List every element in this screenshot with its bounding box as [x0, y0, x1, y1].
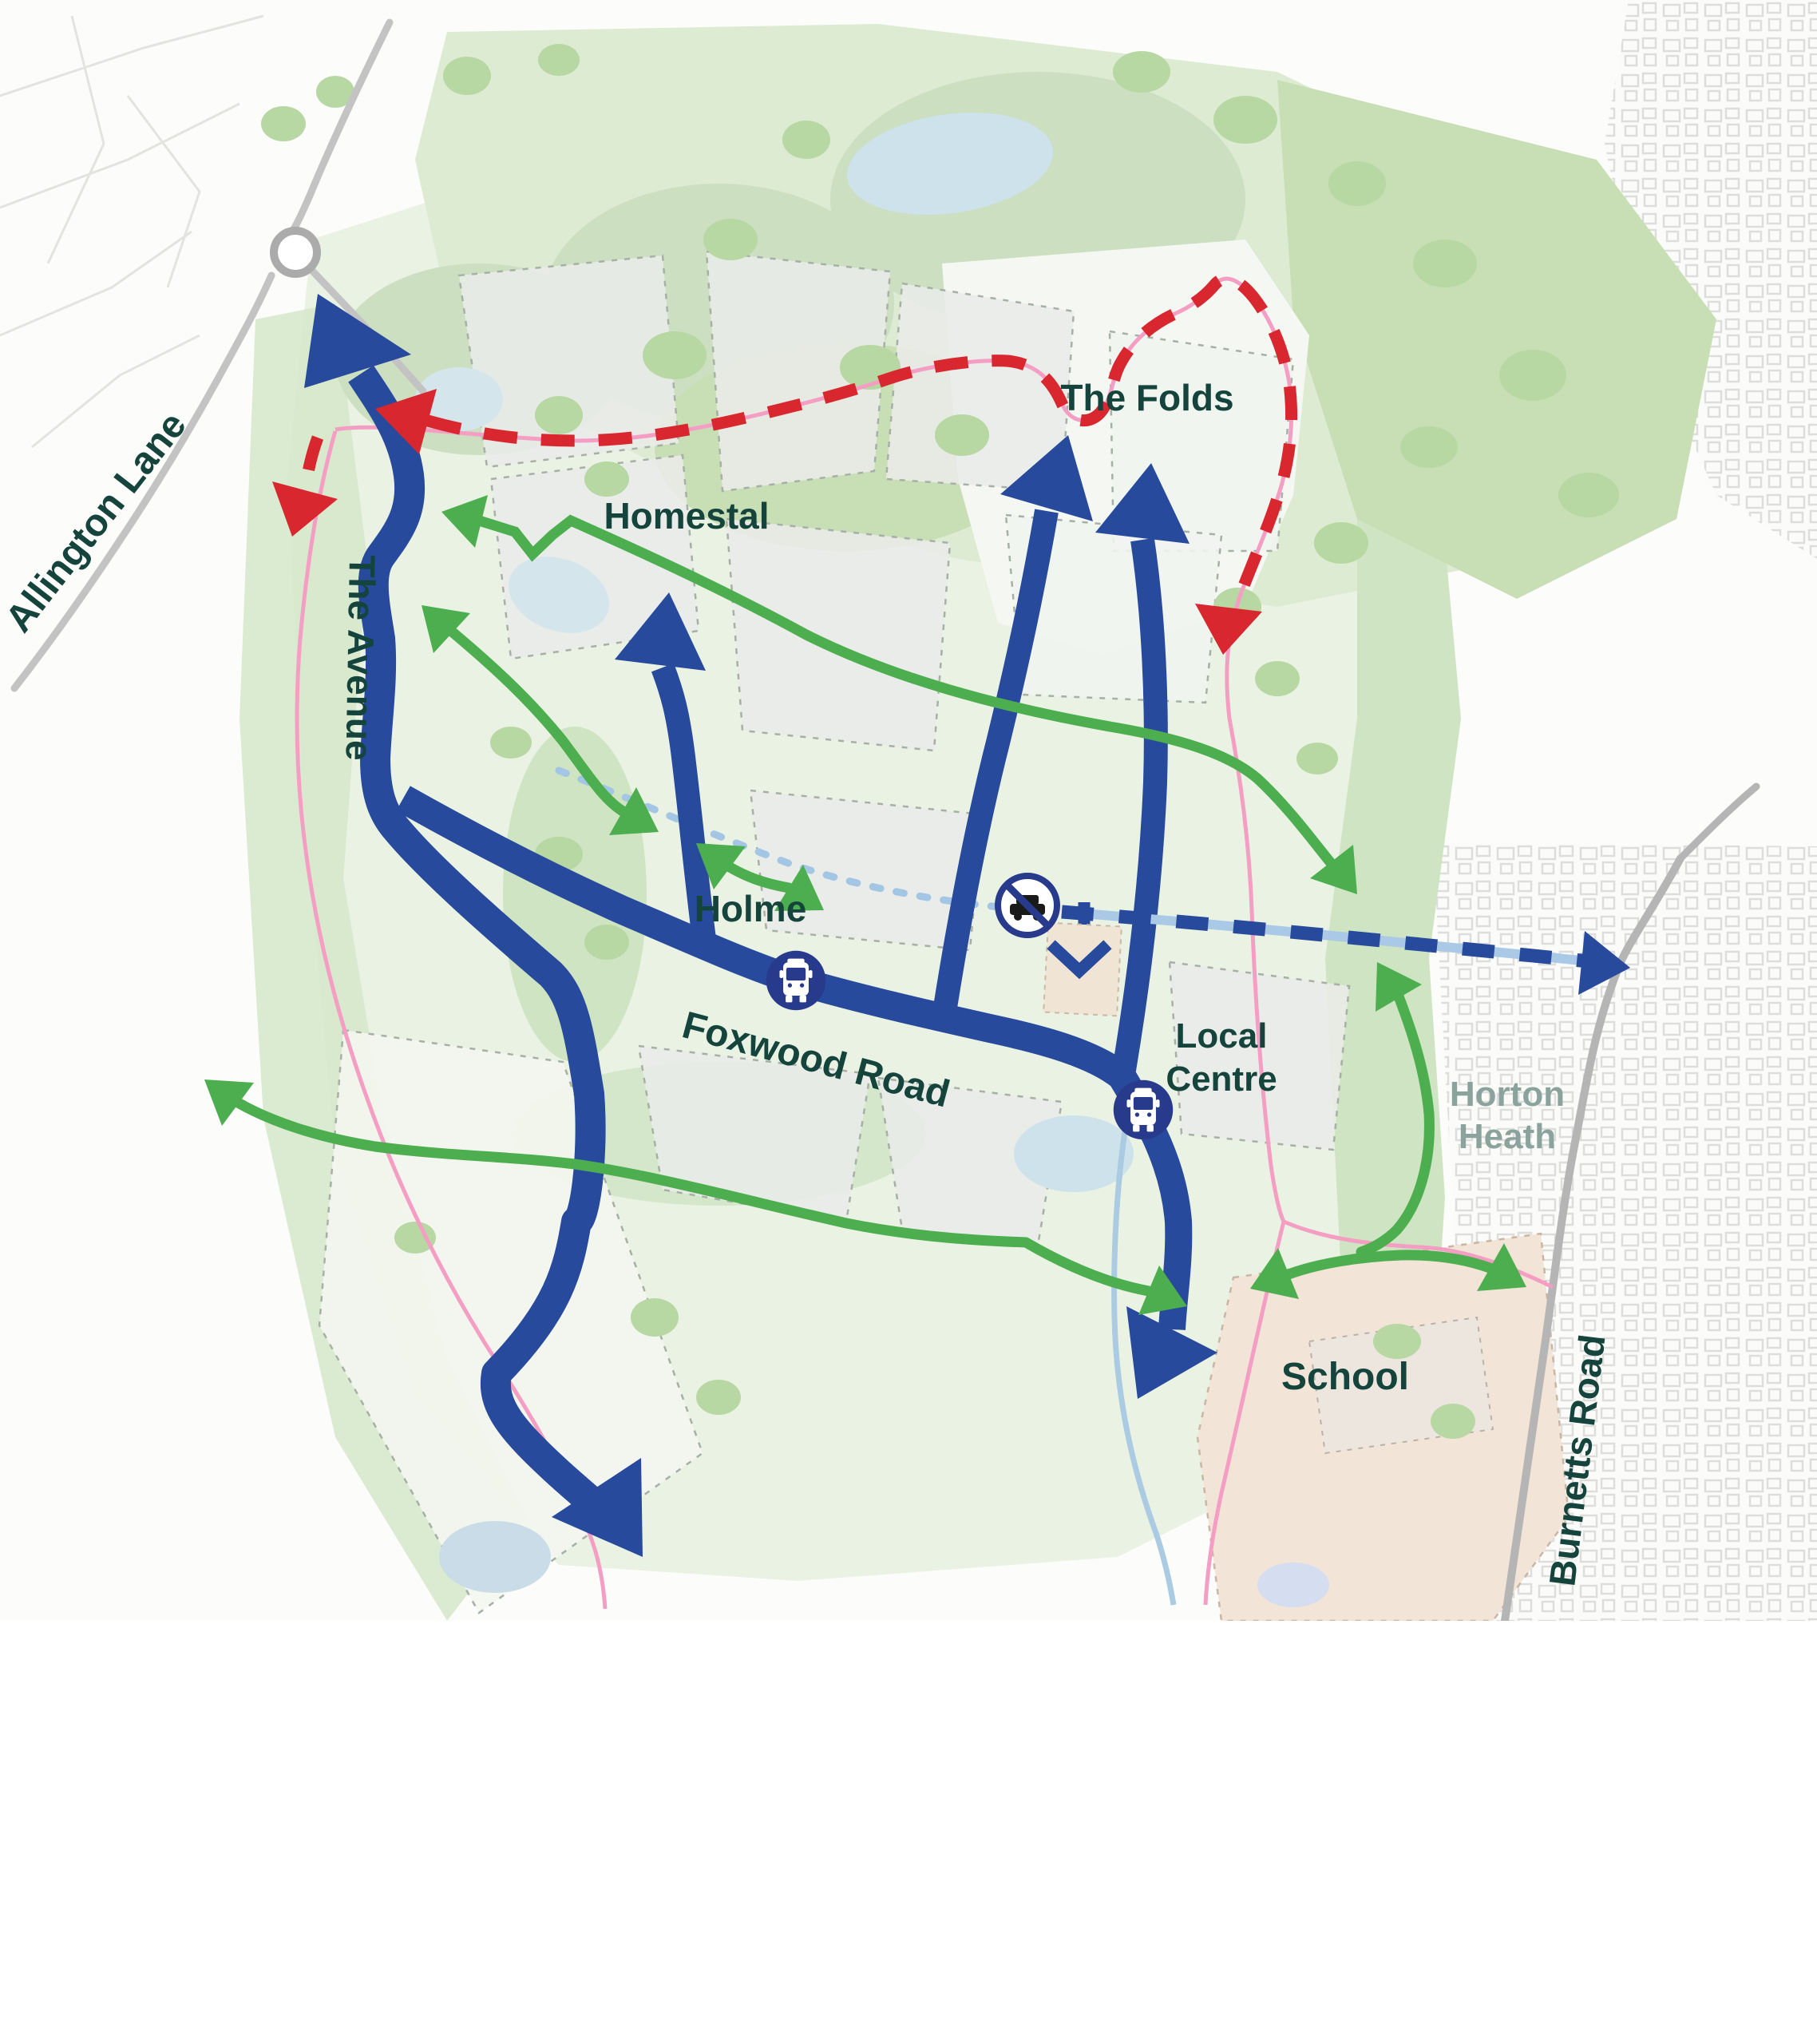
- label-homestal: Homestal: [604, 495, 769, 537]
- map-svg: Allington Lane The Avenue Homestal The F…: [0, 0, 1817, 1621]
- roundabout-circle: [274, 231, 317, 274]
- label-school: School: [1281, 1356, 1409, 1398]
- legend: Vehicle Movements Pedestrian and Cycle R…: [0, 1621, 1817, 2044]
- label-horton-heath-2: Heath: [1459, 1117, 1556, 1156]
- label-local-centre-2: Centre: [1166, 1060, 1277, 1099]
- label-the-folds: The Folds: [1060, 377, 1233, 418]
- no-vehicles-icon: [998, 876, 1057, 935]
- label-horton-heath-1: Horton: [1450, 1075, 1565, 1114]
- movement-framework-map-page: Allington Lane The Avenue Homestal The F…: [0, 0, 1817, 2044]
- label-local-centre-1: Local: [1176, 1016, 1268, 1056]
- bus-icon: [766, 951, 825, 1010]
- label-holme: Holme: [695, 888, 807, 929]
- label-the-avenue: The Avenue: [338, 555, 383, 761]
- bus-icon: [1114, 1080, 1173, 1139]
- map-canvas: Allington Lane The Avenue Homestal The F…: [0, 0, 1817, 1621]
